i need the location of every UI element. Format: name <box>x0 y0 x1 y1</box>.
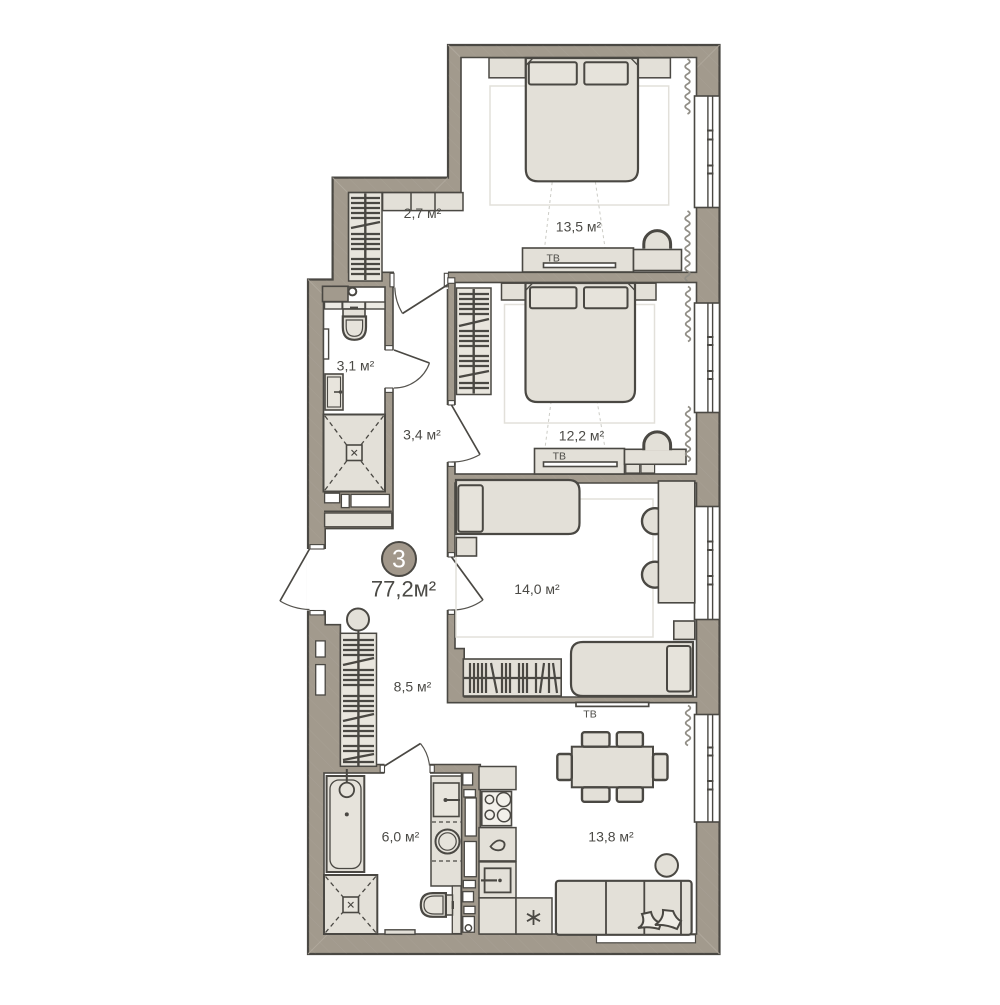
svg-text:13,5 м²: 13,5 м² <box>556 219 602 235</box>
svg-text:2,7 м²: 2,7 м² <box>404 205 442 221</box>
svg-text:77,2м²: 77,2м² <box>371 577 436 602</box>
svg-text:12,2 м²: 12,2 м² <box>559 428 605 444</box>
svg-text:8,5 м²: 8,5 м² <box>394 679 432 695</box>
svg-text:3,1 м²: 3,1 м² <box>337 358 375 374</box>
svg-text:6,0 м²: 6,0 м² <box>382 829 420 845</box>
svg-text:ТВ: ТВ <box>553 450 566 462</box>
svg-text:13,8 м²: 13,8 м² <box>588 829 634 845</box>
svg-text:ТВ: ТВ <box>546 252 559 264</box>
svg-text:3: 3 <box>392 546 406 574</box>
svg-text:3,4 м²: 3,4 м² <box>403 427 441 443</box>
svg-text:ТВ: ТВ <box>583 708 596 720</box>
svg-text:14,0 м²: 14,0 м² <box>514 581 560 597</box>
